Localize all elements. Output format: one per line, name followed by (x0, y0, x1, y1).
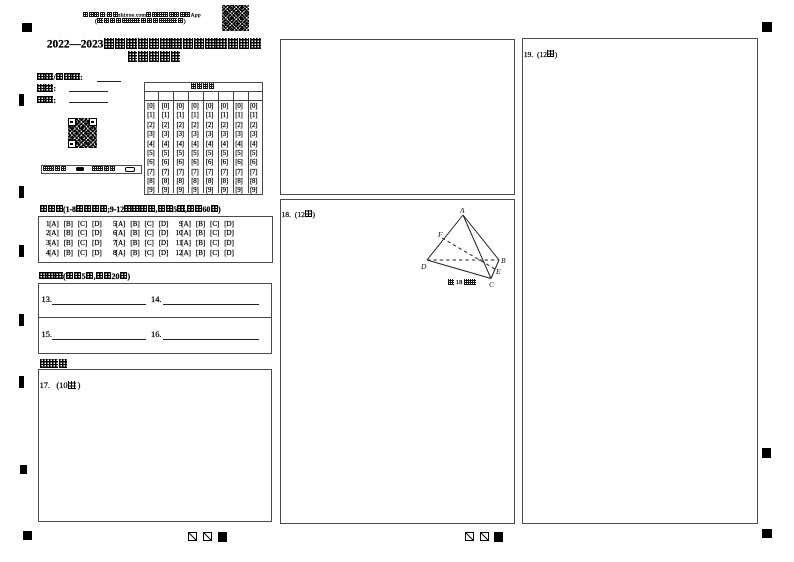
svg-text:F: F (437, 230, 443, 239)
svg-text:C: C (489, 280, 495, 289)
svg-text:E: E (495, 267, 501, 276)
svg-text:D: D (420, 262, 427, 271)
svg-text:A: A (459, 206, 465, 215)
svg-text:B: B (501, 256, 506, 265)
